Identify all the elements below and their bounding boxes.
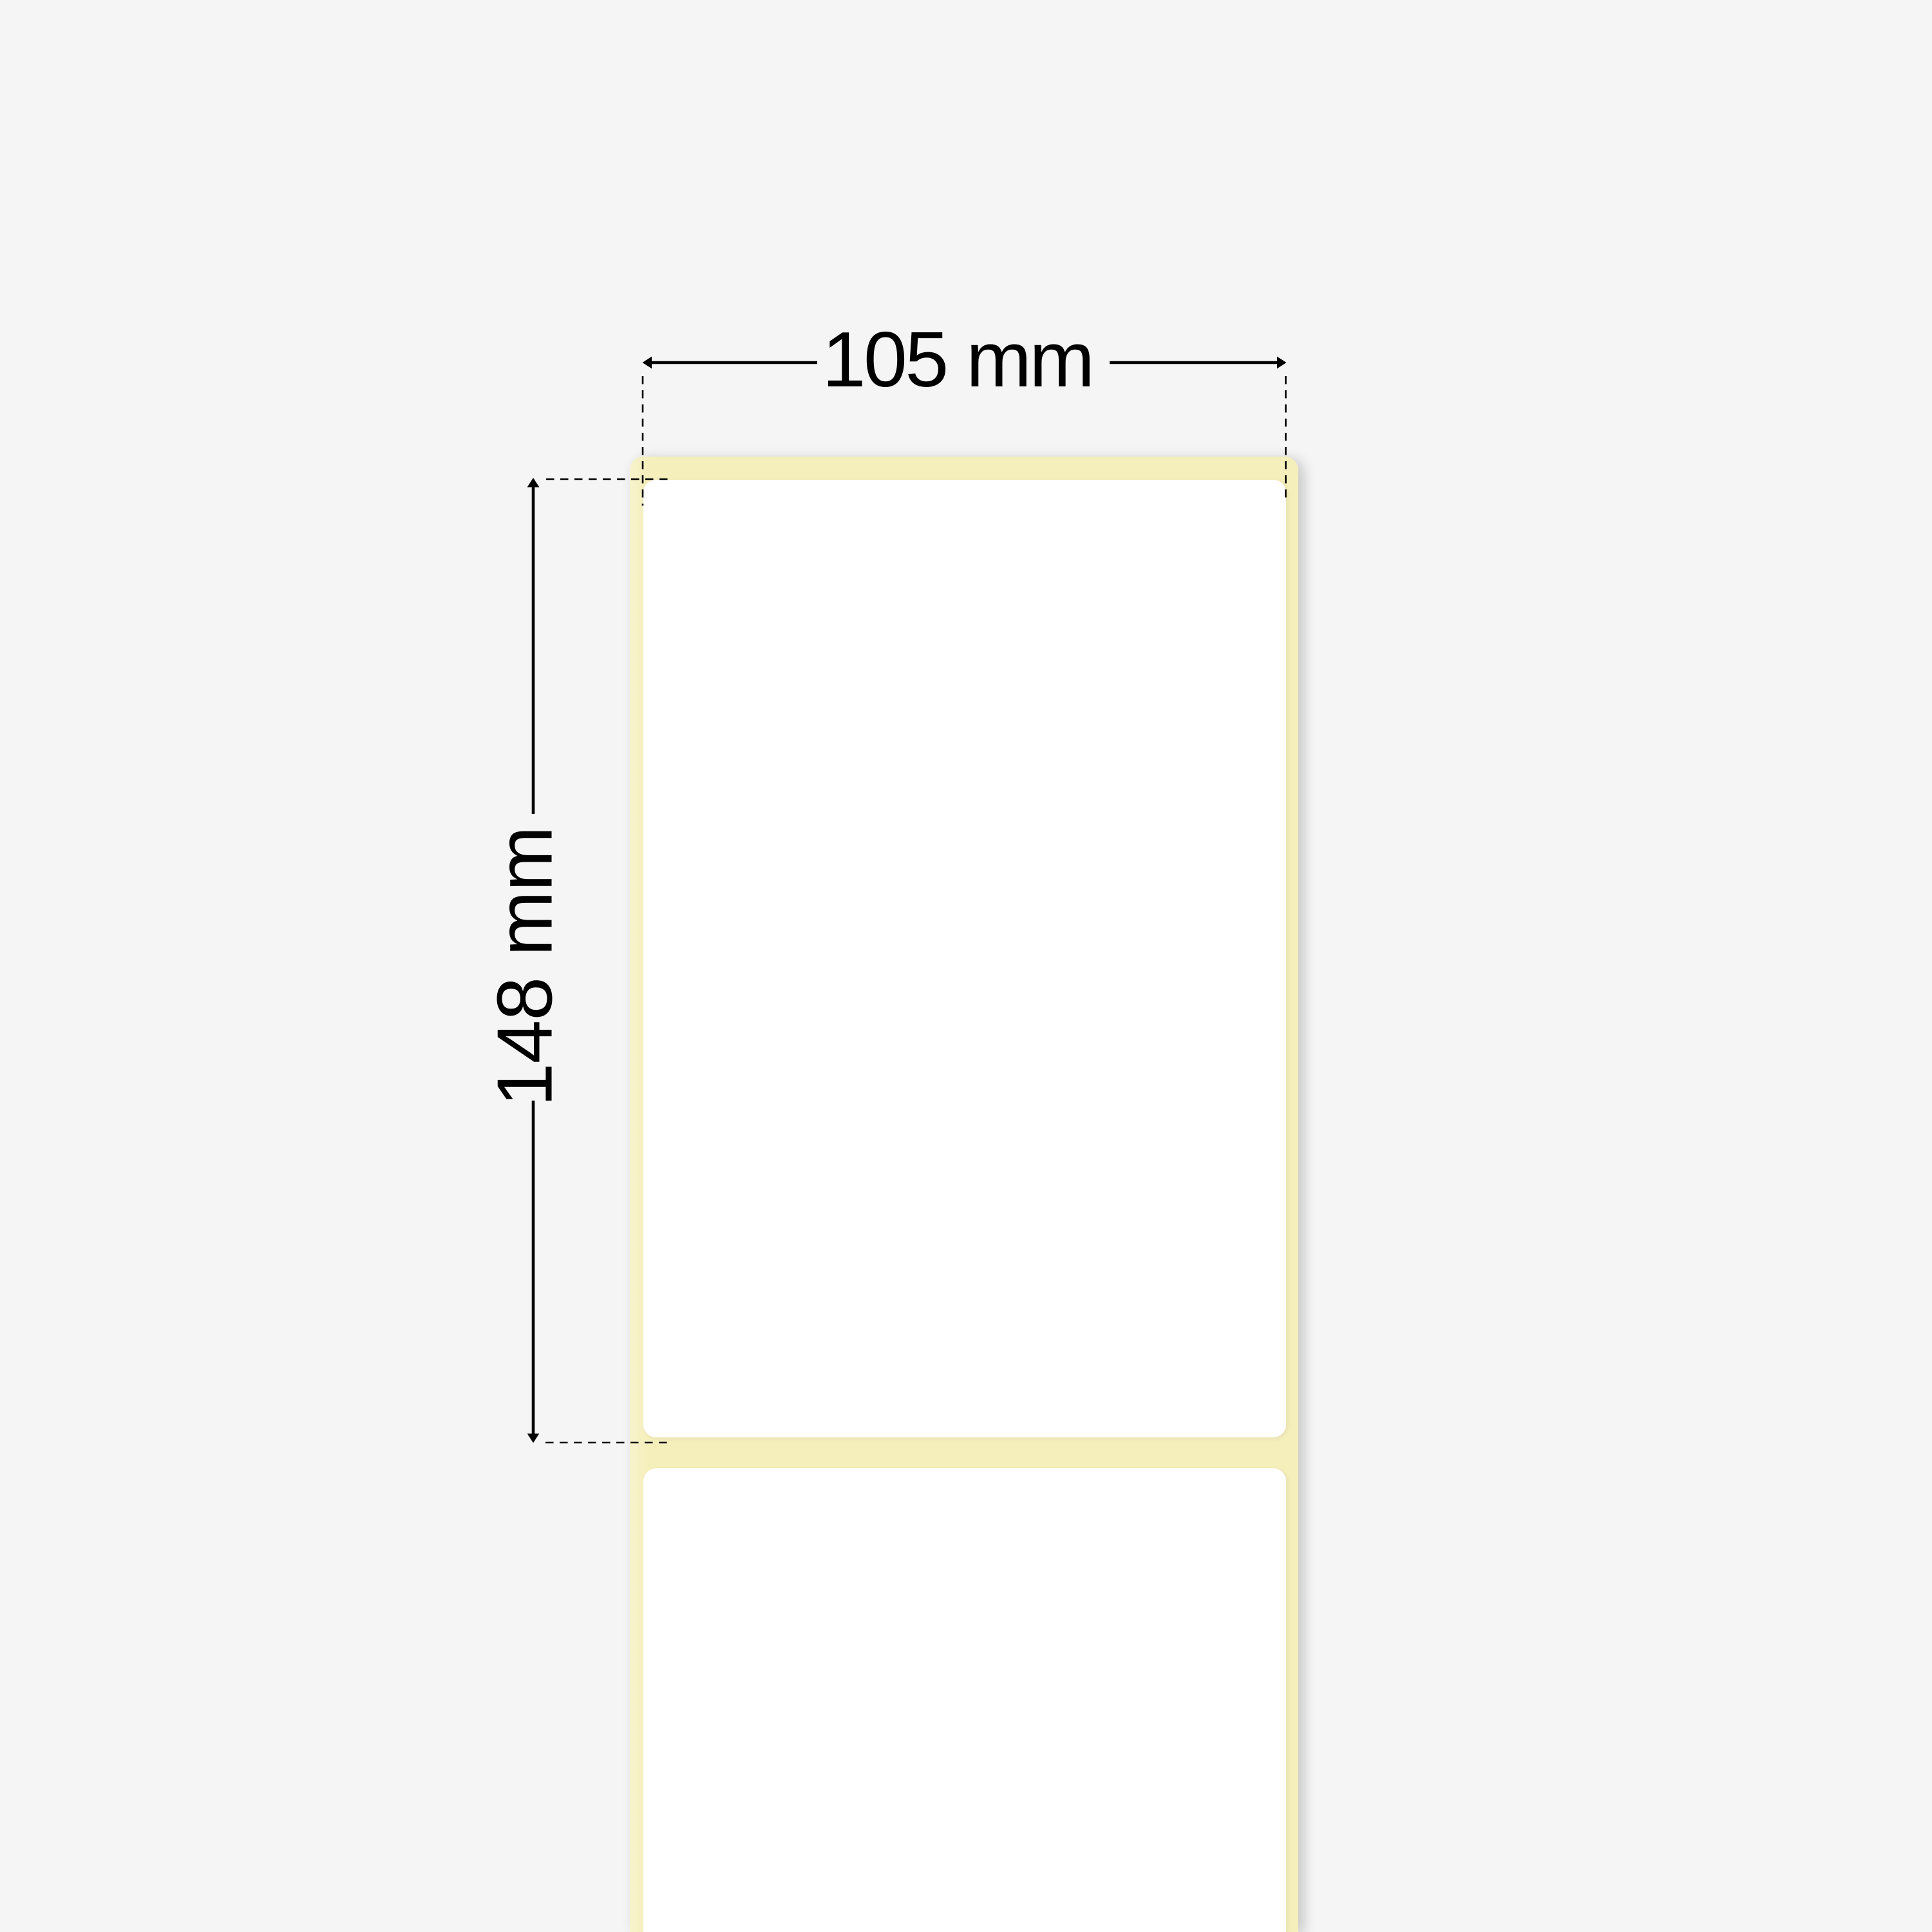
svg-text:105 mm: 105 mm [822,316,1093,403]
svg-text:148 mm: 148 mm [481,827,569,1107]
